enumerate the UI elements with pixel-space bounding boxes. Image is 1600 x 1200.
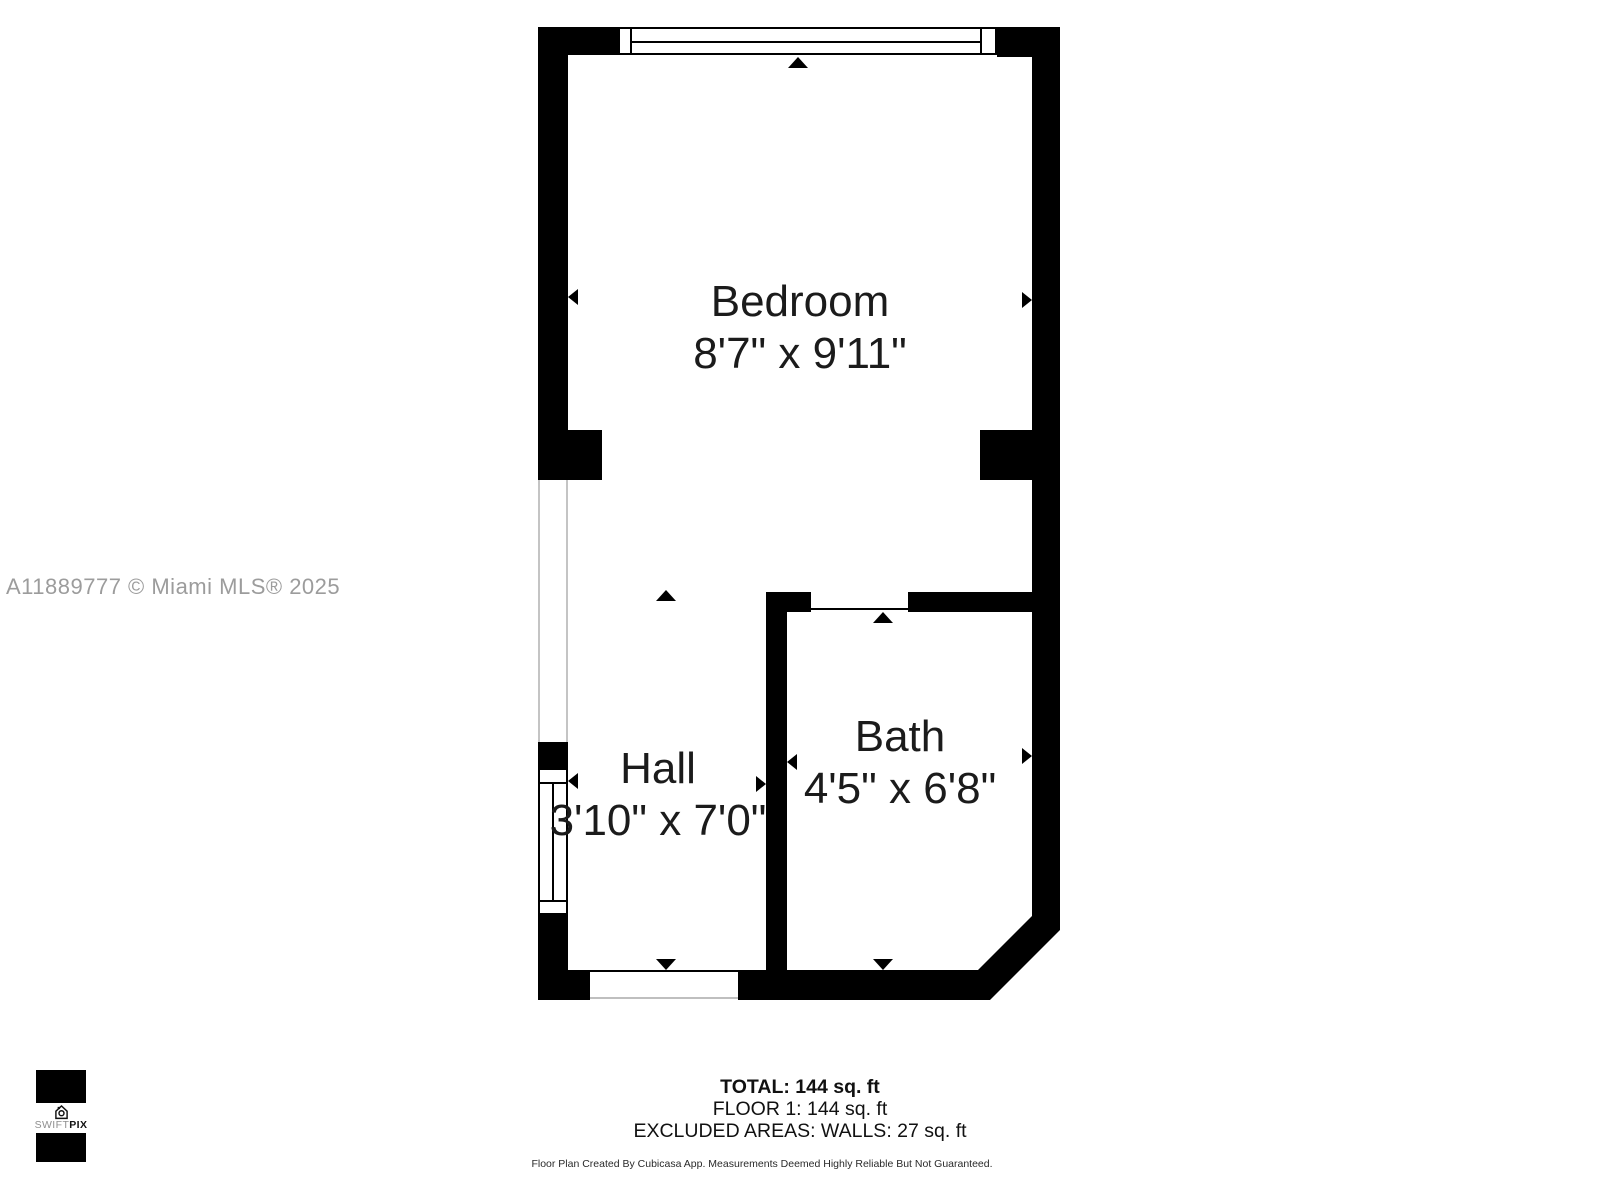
floor-area-text: FLOOR 1: 144 sq. ft <box>500 1098 1100 1120</box>
wall-bedroom-stub-left <box>568 430 602 480</box>
logo-square-top <box>36 1070 86 1103</box>
logo-square-bottom <box>36 1133 86 1162</box>
hall-arrow-up-icon <box>656 590 676 601</box>
logo-text-pix: PIX <box>69 1119 87 1131</box>
house-camera-icon <box>53 1104 70 1120</box>
wall-bedroom-stub-right <box>980 430 1032 480</box>
wall-bath-top-left <box>766 592 811 612</box>
window-mullion <box>630 41 982 43</box>
bath-door-threshold <box>811 608 908 610</box>
bath-name: Bath <box>750 711 1050 763</box>
floor-plan: Bedroom 8'7" x 9'11" Hall 3'10" x 7'0" B… <box>0 0 1600 1200</box>
logo-text-swift: SWIFT <box>35 1119 70 1131</box>
opening-line-left-inner <box>566 480 568 742</box>
wall-chamfer-corner <box>930 870 1060 1000</box>
excluded-area-text: EXCLUDED AREAS: WALLS: 27 sq. ft <box>500 1120 1100 1142</box>
bath-arrow-up-icon <box>873 612 893 623</box>
hall-arrow-down-icon <box>656 959 676 970</box>
area-summary: TOTAL: 144 sq. ft FLOOR 1: 144 sq. ft EX… <box>500 1076 1100 1142</box>
wall-left-upper <box>538 27 568 480</box>
bath-arrow-down-icon <box>873 959 893 970</box>
hall-doorway-line-top <box>590 970 738 972</box>
total-area-text: TOTAL: 144 sq. ft <box>500 1076 1100 1098</box>
swiftpix-logo: SWIFTPIX <box>28 1070 94 1162</box>
bedroom-name: Bedroom <box>550 276 1050 328</box>
disclaimer-text: Floor Plan Created By Cubicasa App. Meas… <box>462 1158 1062 1170</box>
logo-wordmark: SWIFTPIX <box>35 1120 88 1131</box>
bath-label: Bath 4'5" x 6'8" <box>750 711 1050 815</box>
bedroom-dimensions: 8'7" x 9'11" <box>550 328 1050 380</box>
bedroom-arrow-up-icon <box>788 57 808 68</box>
wall-bath-top-right <box>908 592 1032 612</box>
opening-line-left-outer <box>538 480 540 742</box>
bedroom-label: Bedroom 8'7" x 9'11" <box>550 276 1050 380</box>
bath-dimensions: 4'5" x 6'8" <box>750 763 1050 815</box>
wall-bottom-left <box>538 970 590 1000</box>
hall-doorway-line-bottom <box>590 997 738 999</box>
window-top-icon <box>618 27 997 55</box>
floor-plan-page: A11889777 © Miami MLS® 2025 <box>0 0 1600 1200</box>
